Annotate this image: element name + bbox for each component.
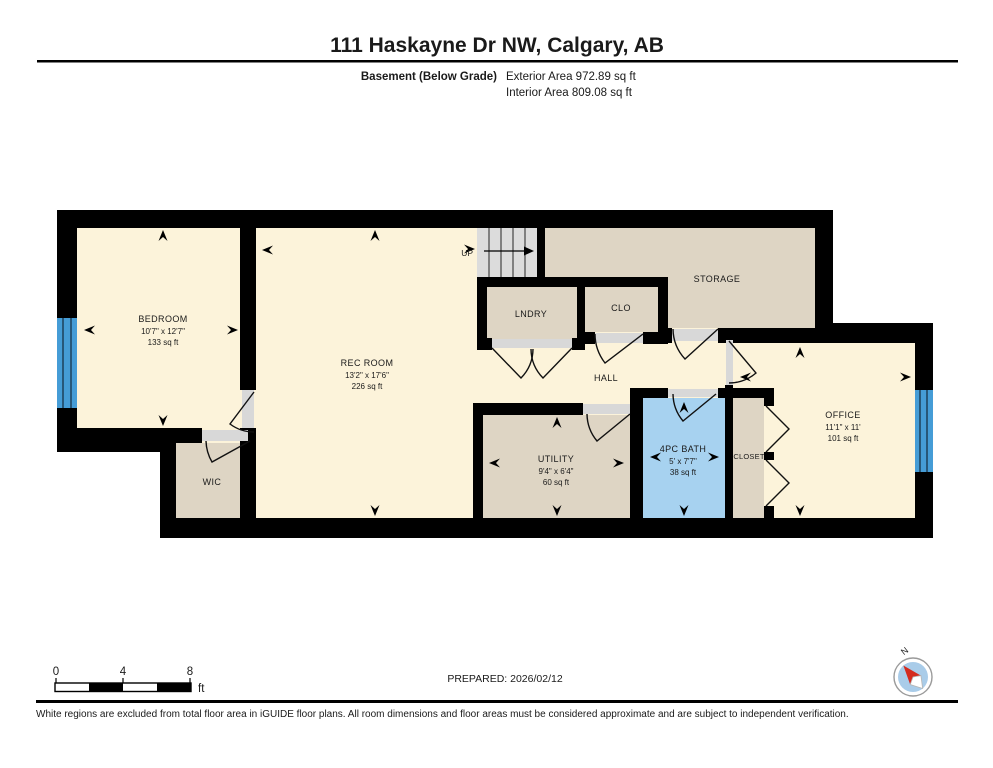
wall bbox=[585, 332, 595, 344]
label-bedroom: BEDROOM bbox=[138, 314, 187, 324]
label-laundry: LNDRY bbox=[515, 309, 547, 319]
wall bbox=[240, 228, 256, 390]
threshold bbox=[726, 340, 733, 385]
wall bbox=[718, 328, 833, 343]
label-bedroom-area: 133 sq ft bbox=[148, 338, 179, 347]
disclaimer-text: White regions are excluded from total fl… bbox=[36, 709, 849, 720]
interior-area: Interior Area 809.08 sq ft bbox=[506, 87, 633, 99]
scale-bar-segment bbox=[89, 683, 123, 692]
wall bbox=[725, 385, 733, 518]
wall bbox=[176, 428, 202, 443]
label-rec-room-area: 226 sq ft bbox=[352, 382, 383, 391]
scale-tick-4: 4 bbox=[120, 666, 127, 678]
scale-unit: ft bbox=[198, 683, 205, 695]
floor-label: Basement (Below Grade) bbox=[361, 71, 497, 83]
header-divider bbox=[37, 60, 958, 63]
scale-bar: 0 4 8 ft bbox=[53, 666, 205, 695]
page-title: 111 Haskayne Dr NW, Calgary, AB bbox=[330, 34, 664, 57]
room-fills bbox=[77, 228, 915, 518]
wall bbox=[477, 338, 492, 350]
wall bbox=[160, 518, 933, 538]
wall bbox=[473, 403, 483, 518]
label-office: OFFICE bbox=[825, 410, 860, 420]
label-storage: STORAGE bbox=[694, 274, 741, 284]
wall bbox=[643, 332, 668, 344]
label-office-area: 101 sq ft bbox=[828, 434, 859, 443]
wall bbox=[915, 323, 933, 390]
wall bbox=[915, 472, 933, 538]
wall bbox=[630, 388, 668, 398]
label-rec-room: REC ROOM bbox=[341, 358, 394, 368]
compass-north-label: N bbox=[899, 645, 910, 657]
window-bedroom bbox=[57, 318, 77, 408]
scale-tick-8: 8 bbox=[187, 666, 193, 678]
wall bbox=[57, 428, 176, 452]
wall bbox=[668, 328, 672, 343]
label-rec-room-dims: 13'2" x 17'6" bbox=[345, 371, 389, 380]
scale-tick-0: 0 bbox=[53, 666, 59, 678]
window-cap bbox=[57, 408, 77, 415]
wall bbox=[477, 277, 668, 287]
wall bbox=[57, 210, 77, 318]
floor-plan-page: 111 Haskayne Dr NW, Calgary, AB Basement… bbox=[0, 0, 993, 768]
wall bbox=[572, 338, 585, 350]
window-cap bbox=[915, 472, 933, 479]
wall bbox=[764, 390, 774, 406]
exterior-area: Exterior Area 972.89 sq ft bbox=[506, 71, 637, 83]
wall bbox=[630, 388, 643, 518]
prepared-date: PREPARED: 2026/02/12 bbox=[447, 673, 563, 685]
wall bbox=[473, 403, 583, 415]
scale-bar-segment bbox=[157, 683, 191, 692]
label-office-dims: 11'1" x 11' bbox=[825, 423, 861, 432]
threshold bbox=[583, 404, 630, 414]
window-cap bbox=[915, 383, 933, 390]
floor-plan-canvas: 111 Haskayne Dr NW, Calgary, AB Basement… bbox=[0, 0, 993, 768]
label-bedroom-dims: 10'7" x 12'7" bbox=[141, 327, 185, 336]
label-bath-dims: 5' x 7'7" bbox=[669, 457, 697, 466]
wall bbox=[815, 210, 833, 343]
threshold bbox=[492, 339, 572, 348]
threshold bbox=[668, 389, 718, 397]
wall bbox=[764, 452, 774, 460]
wall bbox=[725, 330, 733, 340]
threshold bbox=[202, 430, 248, 441]
window-cap bbox=[57, 311, 77, 318]
label-bath: 4PC BATH bbox=[660, 444, 707, 454]
threshold bbox=[595, 333, 643, 343]
wall bbox=[764, 506, 774, 518]
label-utility: UTILITY bbox=[538, 454, 574, 464]
label-up: UP bbox=[461, 248, 473, 258]
label-wic: WIC bbox=[203, 477, 222, 487]
label-bath-area: 38 sq ft bbox=[670, 468, 697, 477]
label-utility-dims: 9'4" x 6'4" bbox=[539, 467, 574, 476]
wall bbox=[57, 210, 833, 228]
label-clo: CLO bbox=[611, 303, 631, 313]
compass-icon: N bbox=[894, 645, 932, 696]
label-closet: CLOSET bbox=[733, 452, 764, 461]
threshold bbox=[242, 390, 254, 428]
label-hall: HALL bbox=[594, 373, 618, 383]
window-office bbox=[915, 390, 933, 472]
footer-divider bbox=[36, 700, 958, 703]
label-utility-area: 60 sq ft bbox=[543, 478, 570, 487]
